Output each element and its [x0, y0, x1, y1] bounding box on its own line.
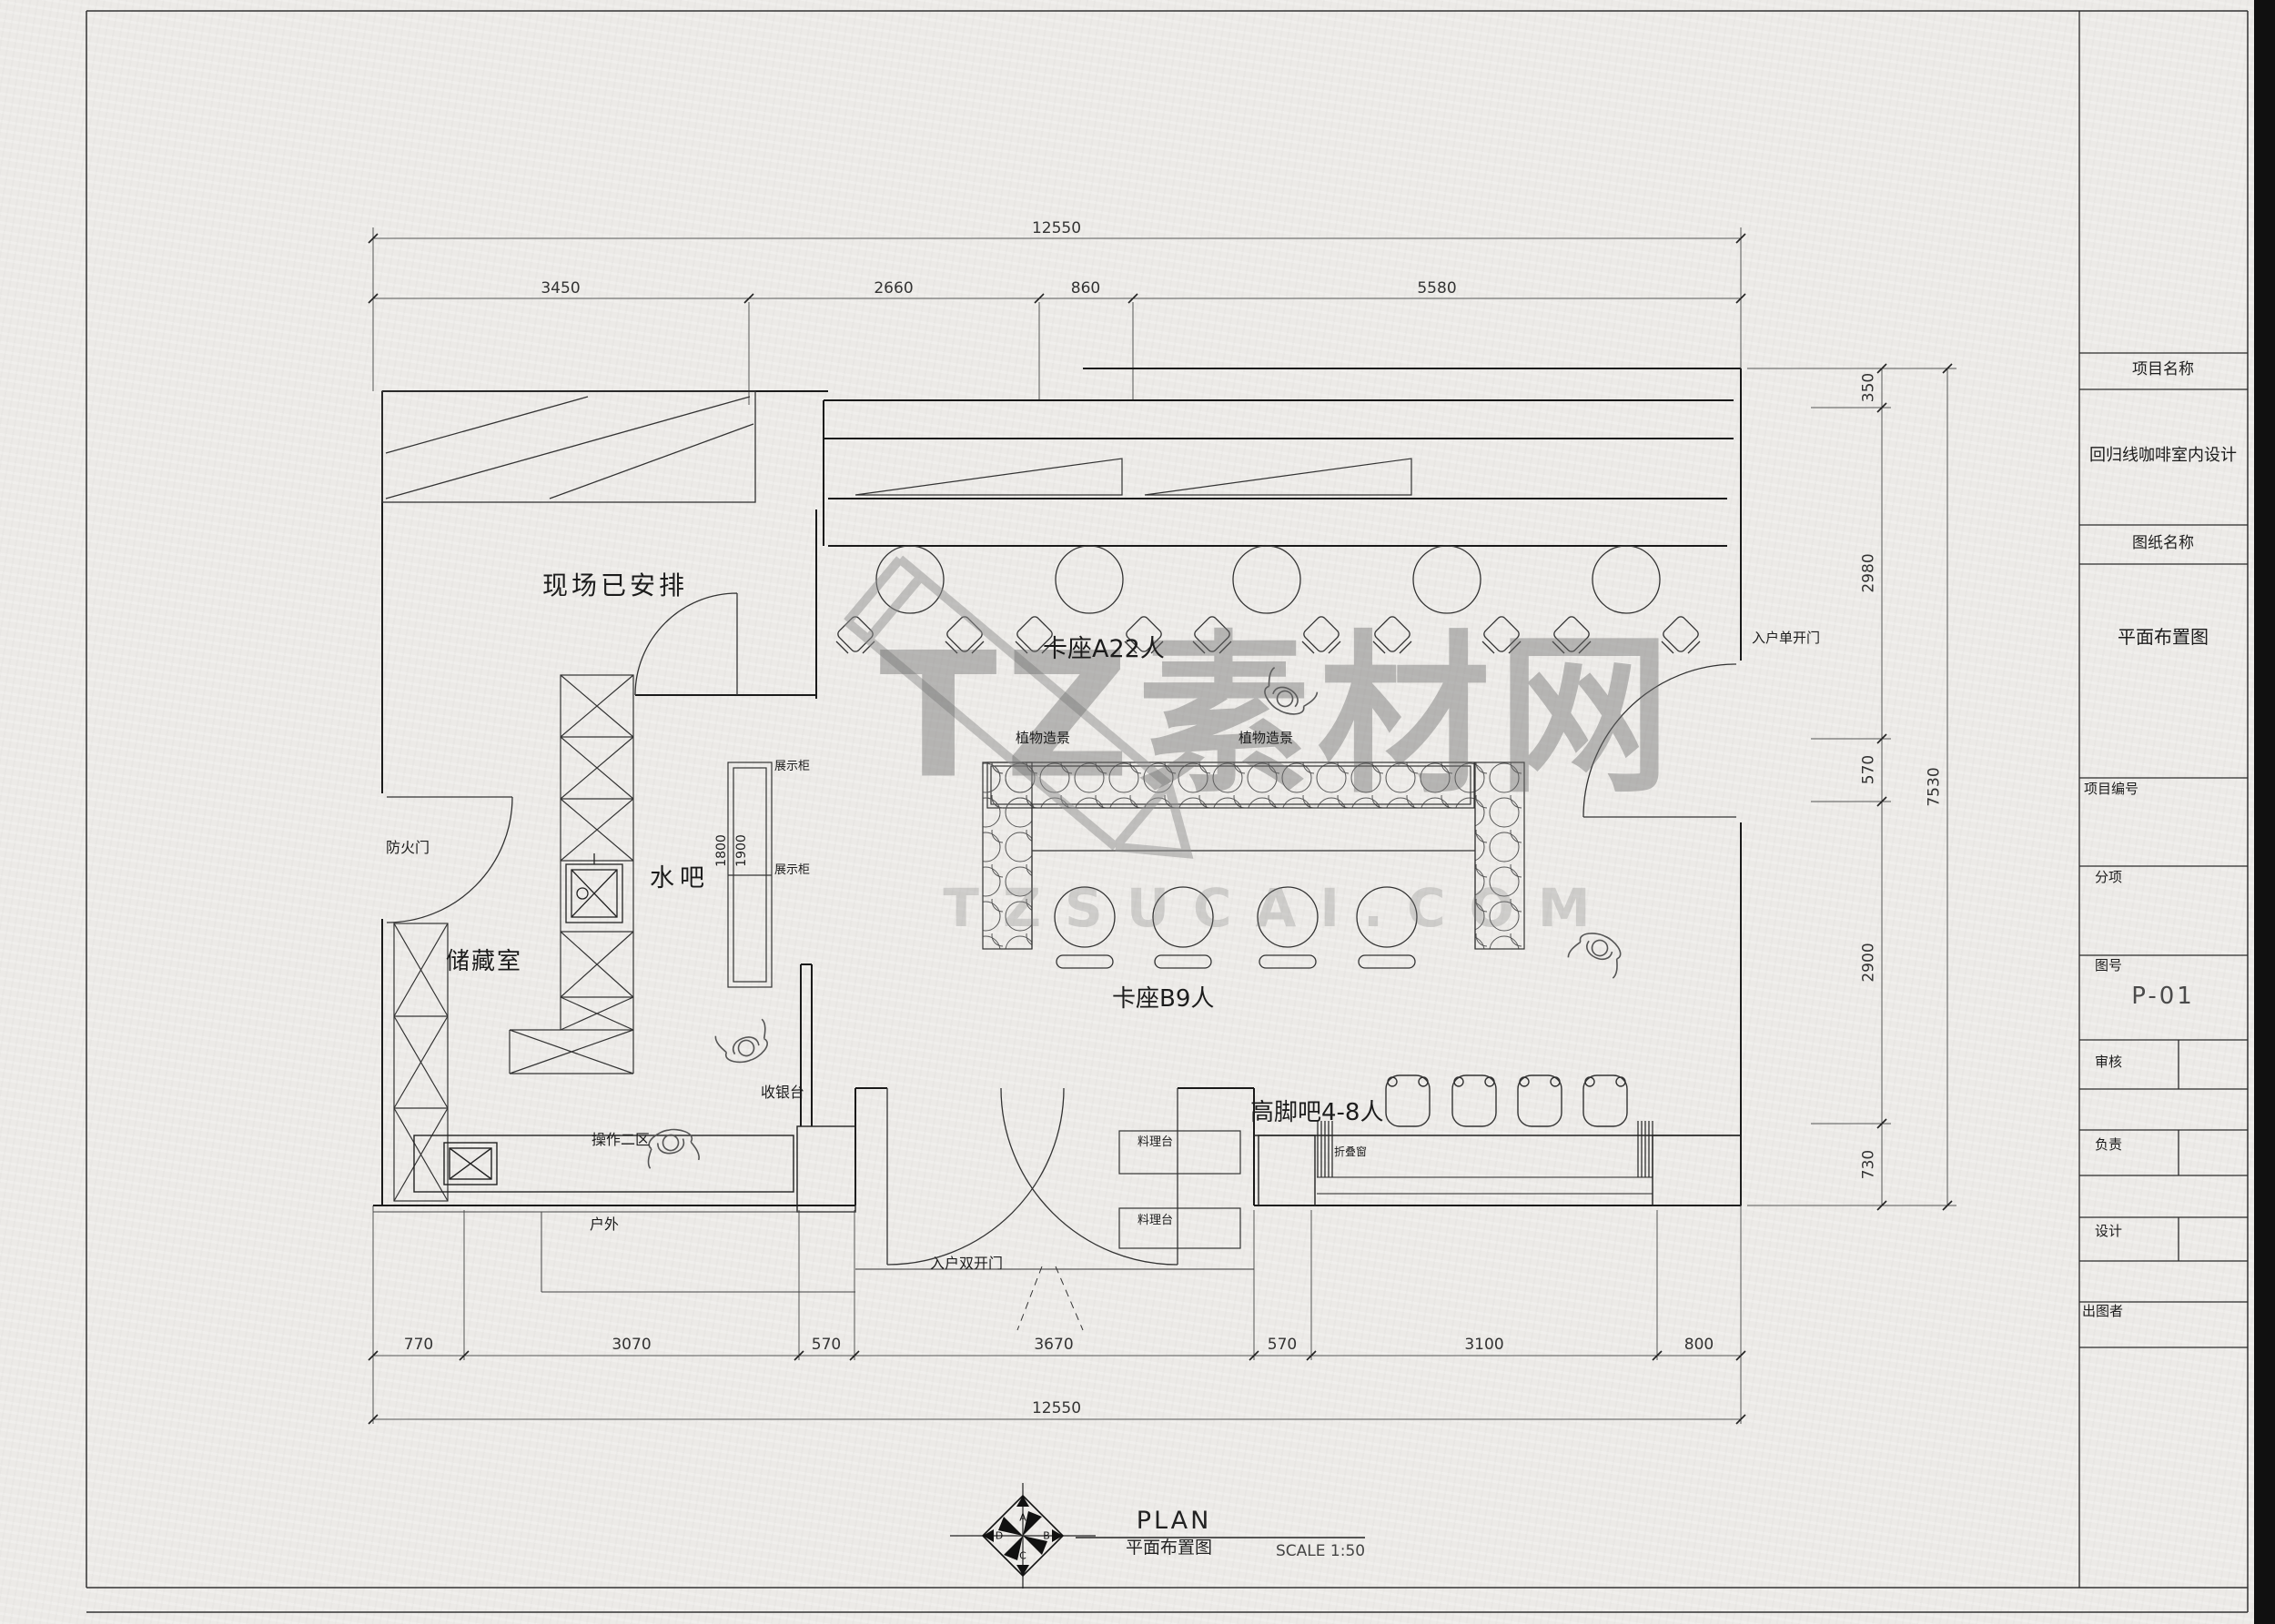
label-entry-double-door: 入户双开门 [930, 1256, 1003, 1271]
dim-top-total: 12550 [1032, 221, 1081, 237]
label-prep-counter-2: 料理台 [1137, 1215, 1173, 1226]
compass-letter-a: A [1019, 1513, 1026, 1523]
watermark-sub: TZSUCAI.COM [943, 877, 1613, 939]
fire-door [387, 797, 512, 923]
dim-right-seg-1: 350 [1862, 373, 1877, 402]
dim-top-seg-1: 3450 [541, 281, 580, 297]
titleblock-design-label: 设计 [2095, 1225, 2122, 1238]
label-plant-scape-2: 植物造景 [1239, 731, 1293, 745]
dim-bottom-seg-1: 770 [404, 1337, 433, 1353]
titleblock-sub-item-label: 分项 [2095, 871, 2122, 884]
dim-right-total: 7530 [1927, 767, 1943, 806]
dimension-ticks [369, 234, 1952, 1424]
display-cabinets [728, 762, 772, 987]
titleblock-review-label: 审核 [2095, 1055, 2122, 1069]
titleblock-responsible-label: 负责 [2095, 1138, 2122, 1152]
compass-letter-c: C [1019, 1551, 1026, 1561]
label-fire-door: 防火门 [386, 841, 430, 855]
label-display-cabinet-1: 展示柜 [774, 761, 810, 772]
high-bar-counter [1254, 1135, 1741, 1205]
label-booth-b: 卡座B9人 [1112, 987, 1214, 1011]
compass-letter-d: D [996, 1531, 1003, 1541]
titleblock-drawing-name-label: 图纸名称 [2132, 536, 2194, 551]
dim-top-seg-2: 2660 [874, 281, 913, 297]
dim-right-seg-4: 2900 [1862, 943, 1877, 982]
footer-scale: SCALE 1:50 [1276, 1544, 1365, 1559]
label-prep-counter-1: 料理台 [1137, 1136, 1173, 1148]
label-display-cabinet-2: 展示柜 [774, 864, 810, 876]
label-folding-window: 折叠窗 [1334, 1146, 1367, 1157]
watermark-main: TZ素材网 [879, 576, 1677, 826]
dim-top-seg-3: 860 [1071, 281, 1100, 297]
dim-cabinet-1900: 1900 [735, 834, 748, 867]
person-icon [643, 1125, 700, 1168]
beam-hatch [382, 391, 755, 502]
label-cashier: 收银台 [761, 1085, 804, 1100]
footer-plan-subtitle: 平面布置图 [1126, 1539, 1212, 1557]
dim-bottom-seg-4: 3670 [1034, 1337, 1073, 1353]
titleblock-project-name-value: 回归线咖啡室内设计 [2089, 448, 2237, 464]
label-high-bar: 高脚吧4-8人 [1250, 1101, 1383, 1125]
north-compass-icon [950, 1483, 1096, 1589]
label-booth-a: 卡座A22人 [1043, 637, 1165, 661]
footer-plan-title: PLAN [1137, 1508, 1212, 1533]
dim-right-seg-2: 2980 [1862, 553, 1877, 592]
dim-bottom-seg-5: 570 [1268, 1337, 1297, 1353]
sheet-edge-bar [2254, 0, 2275, 1624]
label-storage: 储藏室 [446, 950, 522, 973]
dim-right-seg-5: 730 [1862, 1150, 1877, 1179]
titleblock-project-no-label: 项目编号 [2084, 782, 2138, 796]
high-bar-stools [1386, 1075, 1627, 1126]
dim-top-seg-4: 5580 [1417, 281, 1456, 297]
entry-double-door-arcs [855, 1088, 1254, 1330]
dim-bottom-seg-3: 570 [812, 1337, 841, 1353]
cashier-counter [797, 1126, 855, 1212]
titleblock-project-name-label: 项目名称 [2132, 362, 2194, 378]
dim-cabinet-1800: 1800 [715, 834, 728, 867]
dim-bottom-seg-2: 3070 [612, 1337, 651, 1353]
titleblock-drawing-no-value: P-01 [2131, 984, 2195, 1008]
label-plant-scape-1: 植物造景 [1016, 731, 1070, 745]
dim-right-seg-3: 570 [1862, 755, 1877, 784]
dim-bottom-seg-7: 800 [1684, 1337, 1714, 1353]
dimension-lines [373, 227, 1956, 1424]
drawing-sheet: TZ素材网 TZSUCAI.COM 12550 3450 2660 860 55… [0, 0, 2275, 1624]
title-block-grid [2079, 11, 2248, 1588]
storage-shelving [394, 923, 448, 1201]
titleblock-drawing-no-label: 图号 [2095, 959, 2122, 973]
label-outdoor: 户外 [590, 1217, 619, 1232]
label-site-arranged: 现场已安排 [542, 573, 688, 599]
interior-door [635, 593, 737, 695]
label-operation-zone: 操作二区 [591, 1133, 650, 1147]
water-bar-sink [566, 853, 622, 923]
compass-letter-b: B [1043, 1531, 1050, 1541]
titleblock-issue-label: 出图者 [2082, 1305, 2123, 1318]
label-entry-single-door: 入户单开门 [1752, 631, 1820, 645]
person-icon [714, 1019, 774, 1069]
ceiling-panels [855, 459, 1411, 495]
folding-window-hatch [1318, 1121, 1653, 1177]
titleblock-drawing-name-value: 平面布置图 [2118, 628, 2209, 646]
label-water-bar: 水吧 [650, 866, 710, 891]
dim-bottom-total: 12550 [1032, 1401, 1081, 1417]
dim-bottom-seg-6: 3100 [1464, 1337, 1503, 1353]
